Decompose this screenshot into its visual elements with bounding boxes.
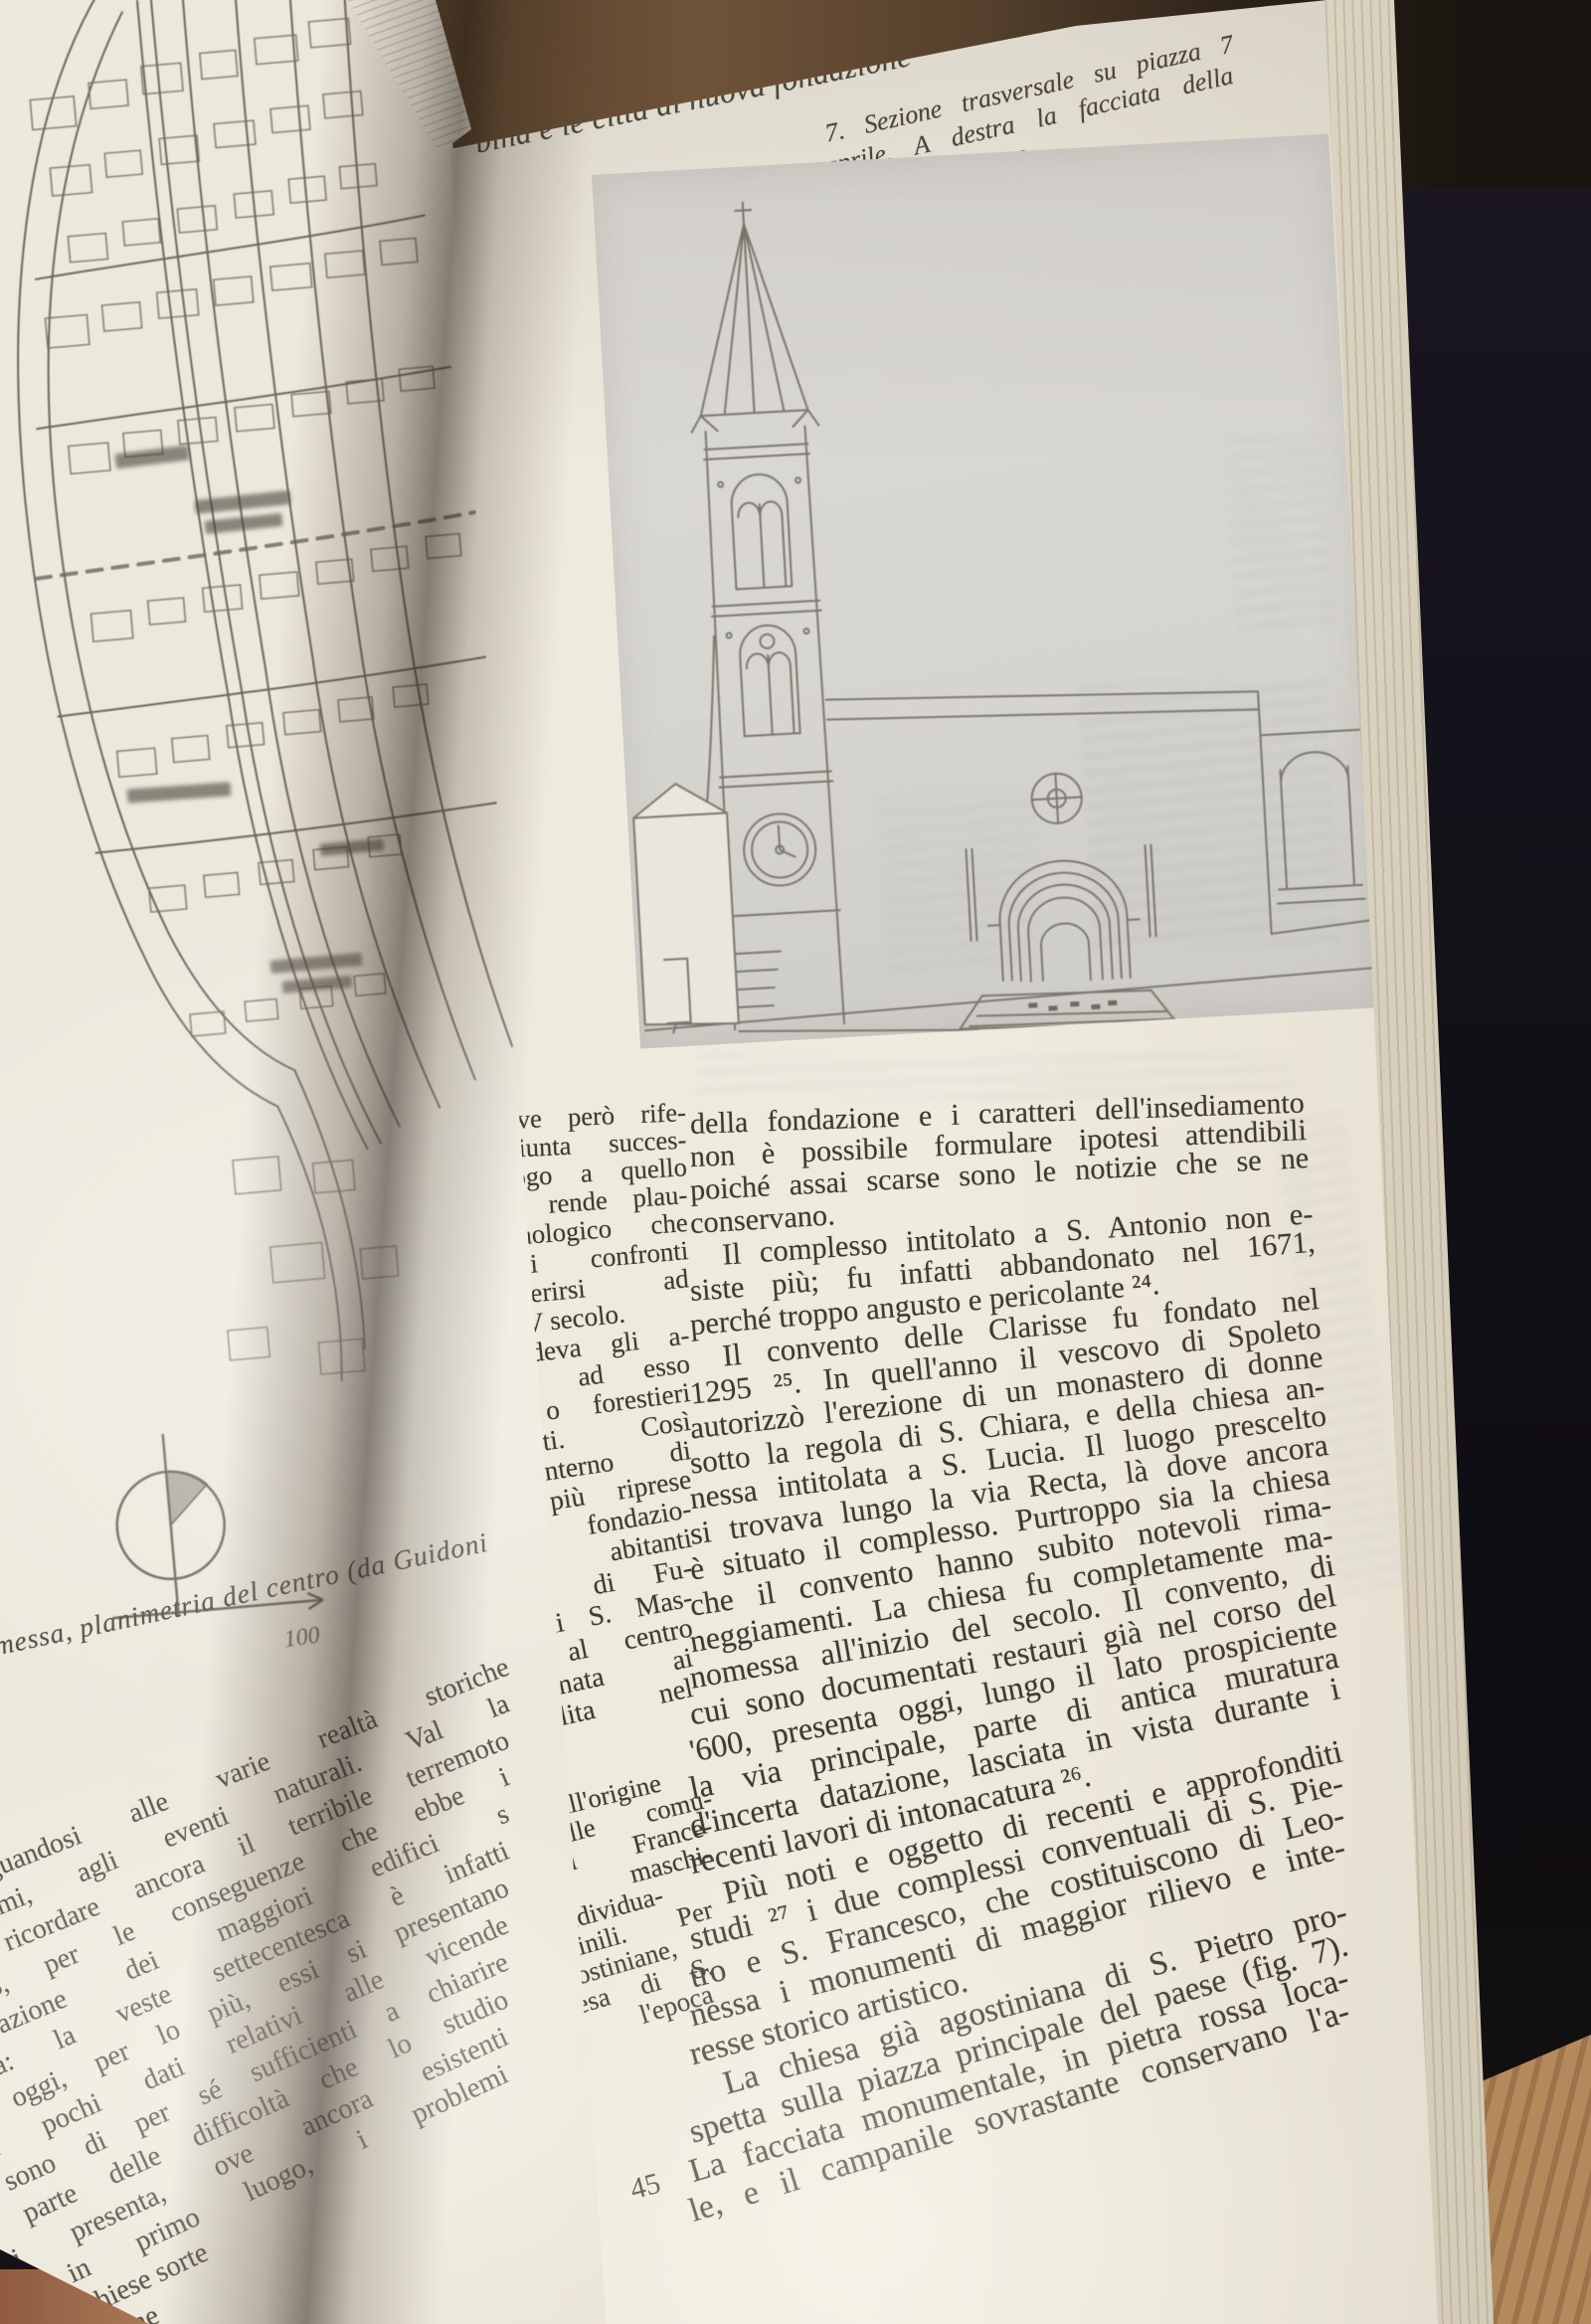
open-book-photo: 100 messa, planimetria del centro (da Gu…: [0, 0, 1591, 2324]
